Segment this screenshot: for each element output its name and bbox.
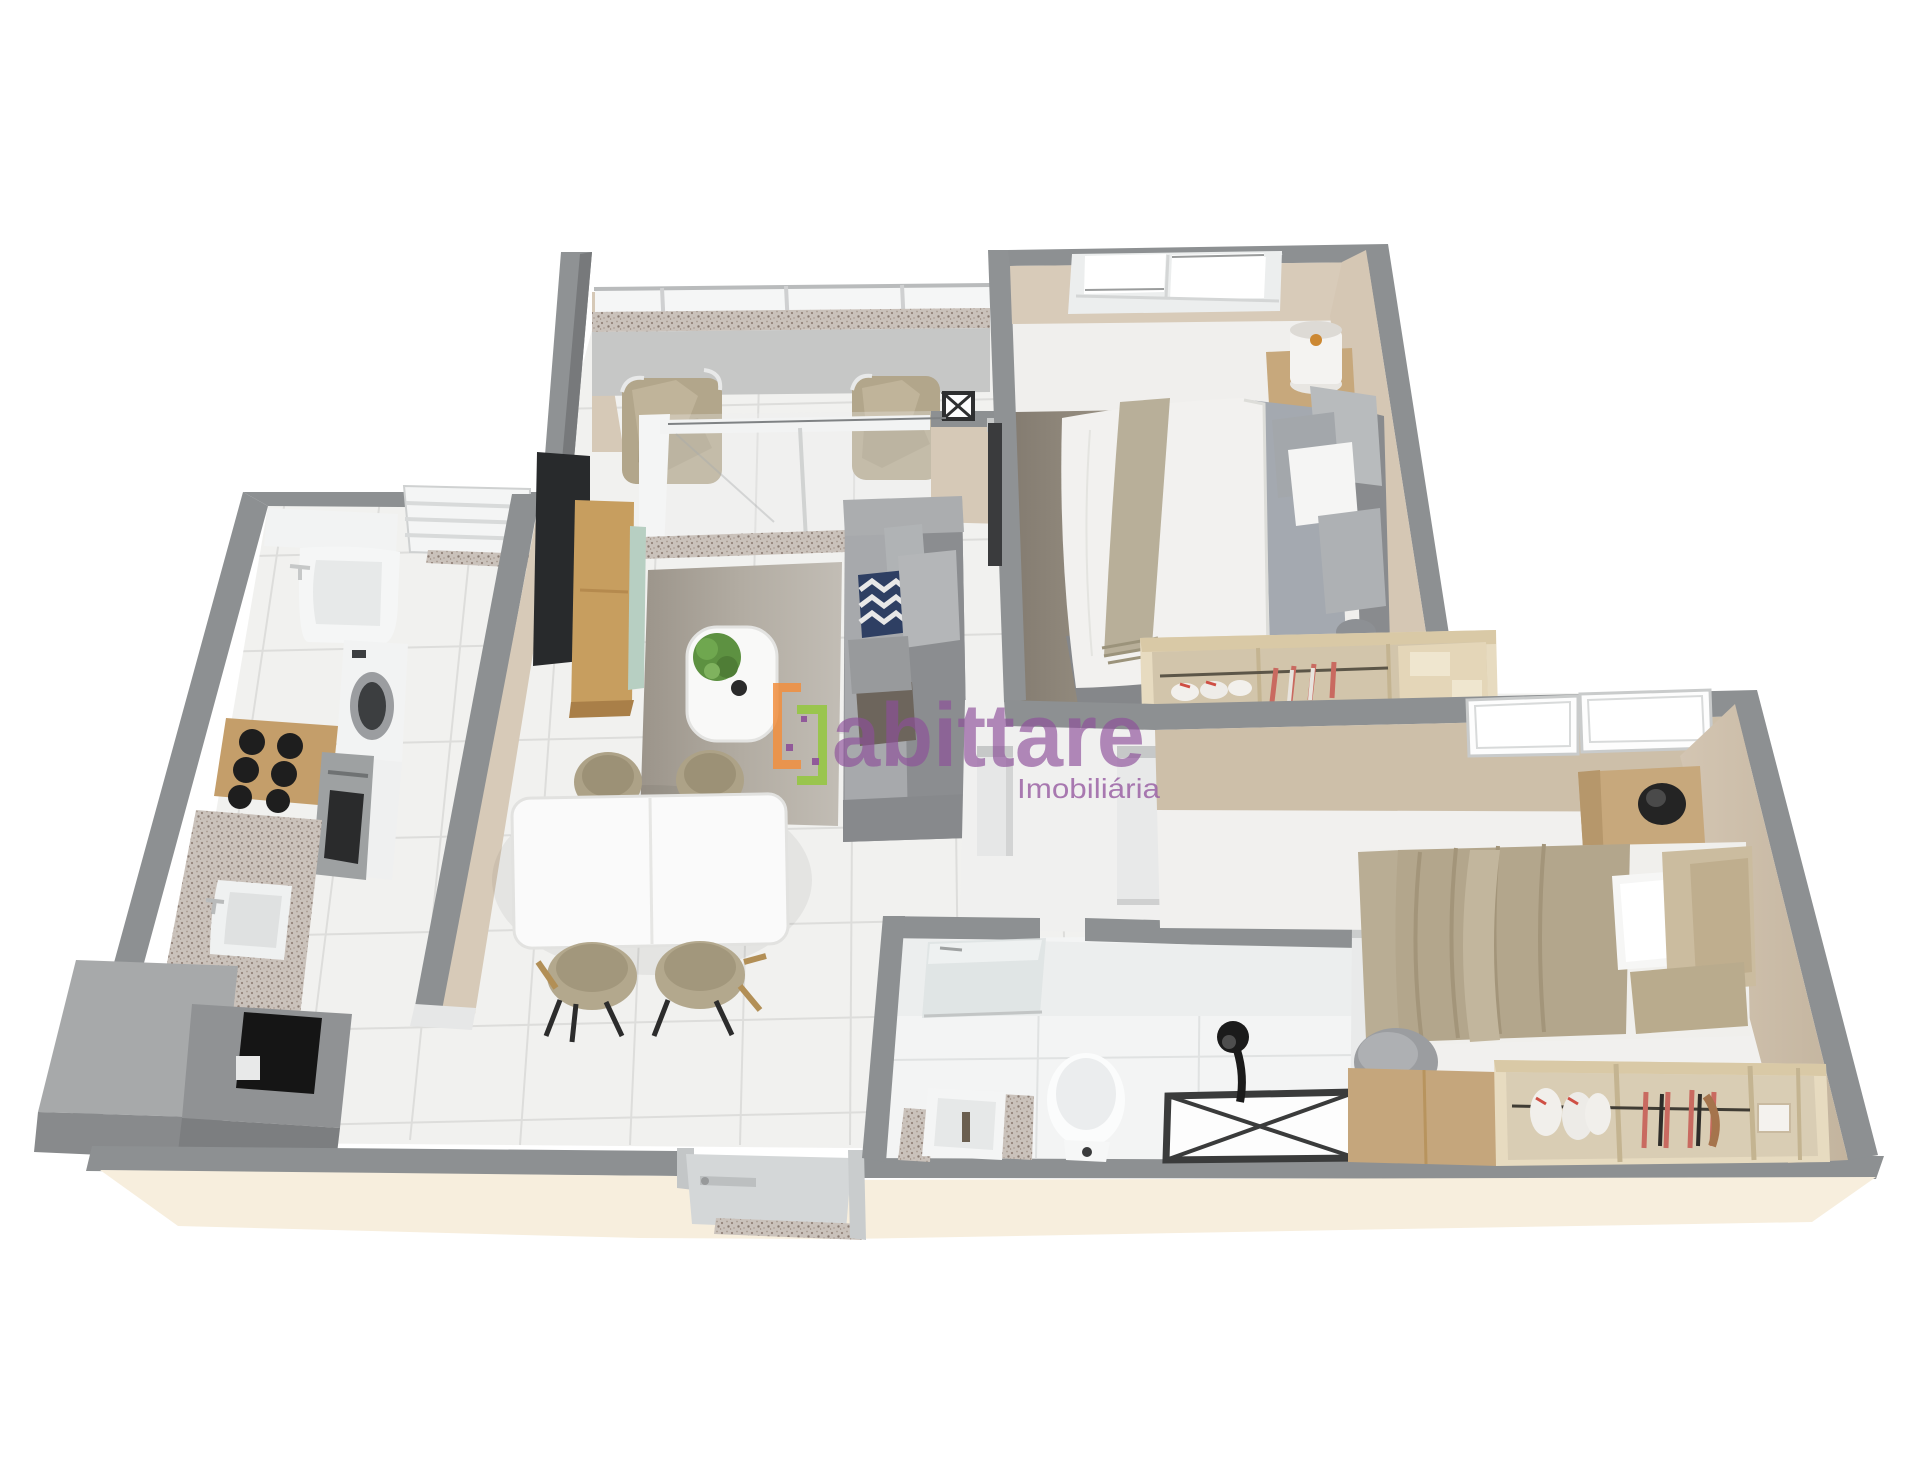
svg-text:abittare: abittare — [832, 686, 1145, 786]
svg-text:Imobiliária: Imobiliária — [1017, 773, 1160, 804]
